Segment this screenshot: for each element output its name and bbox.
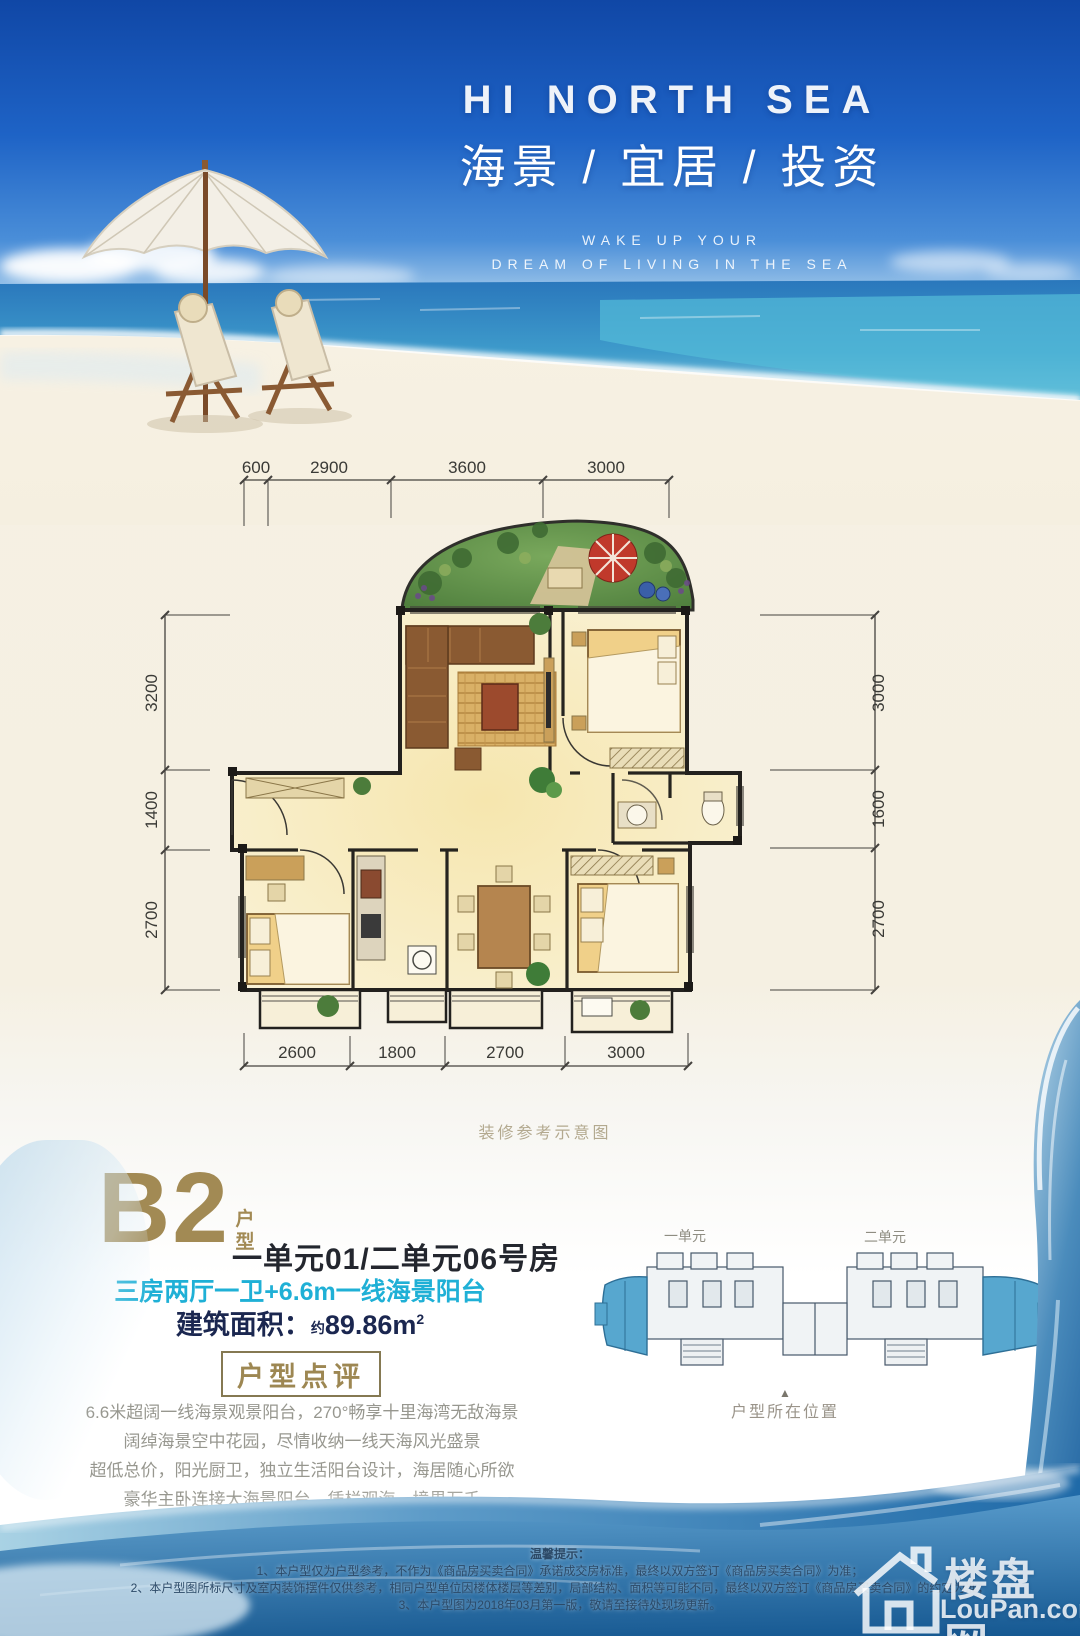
dining-palm-plant xyxy=(526,962,550,986)
dim-label: 3000 xyxy=(869,674,888,712)
roof-garden-balcony xyxy=(402,521,693,610)
area-approx: 约 xyxy=(311,1320,325,1336)
key-plan-building2 xyxy=(847,1253,983,1365)
tagline-line1: WAKE UP YOUR xyxy=(442,228,902,252)
key-plan-highlight-unit1 xyxy=(595,1277,647,1355)
dim-label: 2700 xyxy=(869,900,888,938)
corridor-plant xyxy=(353,777,371,795)
dim-label: 1600 xyxy=(869,790,888,828)
area-exponent: 2 xyxy=(416,1311,424,1327)
garden-lounger xyxy=(548,568,582,588)
dim-label: 600 xyxy=(242,458,270,477)
straw-hat xyxy=(276,290,302,316)
dim-label: 3600 xyxy=(448,458,486,477)
living-room-furniture xyxy=(406,613,556,770)
plan-caption: 装修参考示意图 xyxy=(380,1119,710,1143)
living-plant xyxy=(529,613,551,635)
balcony-plant xyxy=(317,995,339,1017)
location-marker: ▲ xyxy=(779,1386,791,1400)
garden-umbrella xyxy=(589,534,637,582)
balcony-plant xyxy=(630,1000,650,1020)
dim-label: 1400 xyxy=(142,791,161,829)
review-title: 户型点评 xyxy=(237,1355,365,1394)
dim-label: 3200 xyxy=(142,674,161,712)
dim-label: 1800 xyxy=(378,1043,416,1062)
dim-label: 2700 xyxy=(142,901,161,939)
dim-label: 2700 xyxy=(486,1043,524,1062)
watermark: 楼盘网 LouPan.com xyxy=(848,1542,1080,1636)
hero-title-block: HI NORTH SEA 海景 / 宜居 / 投资 xyxy=(442,78,902,197)
location-label: 户型所在位置 xyxy=(731,1403,839,1421)
garden-pot xyxy=(656,587,670,601)
key-plan-unit1-label: 一单元 xyxy=(664,1228,706,1244)
dim-label: 2900 xyxy=(310,458,348,477)
watermark-english: LouPan.com xyxy=(940,1594,1080,1625)
title-chinese: 海景 / 宜居 / 投资 xyxy=(442,131,902,197)
garden-pot xyxy=(639,582,655,598)
straw-hat xyxy=(179,294,207,322)
review-title-box: 户型点评 xyxy=(221,1351,381,1397)
house-icon xyxy=(848,1542,944,1634)
title-english: HI NORTH SEA xyxy=(442,78,902,123)
poster: HI NORTH SEA 海景 / 宜居 / 投资 WAKE UP YOUR D… xyxy=(0,0,1080,1636)
key-plan-connector xyxy=(783,1303,847,1355)
dim-label: 3000 xyxy=(607,1043,645,1062)
tagline-line2: DREAM OF LIVING IN THE SEA xyxy=(442,252,902,276)
dim-label: 3000 xyxy=(587,458,625,477)
dim-label: 2600 xyxy=(278,1043,316,1062)
floor-plan: 600 2900 3600 3000 2600 1800 2700 3000 3… xyxy=(110,418,920,1118)
key-plan-unit2-label: 二单元 xyxy=(864,1229,906,1245)
key-plan-building1 xyxy=(647,1253,783,1365)
area-value: 89.86m xyxy=(325,1310,417,1340)
hero-tagline: WAKE UP YOUR DREAM OF LIVING IN THE SEA xyxy=(442,228,902,276)
area-label: 建筑面积： xyxy=(176,1310,311,1340)
